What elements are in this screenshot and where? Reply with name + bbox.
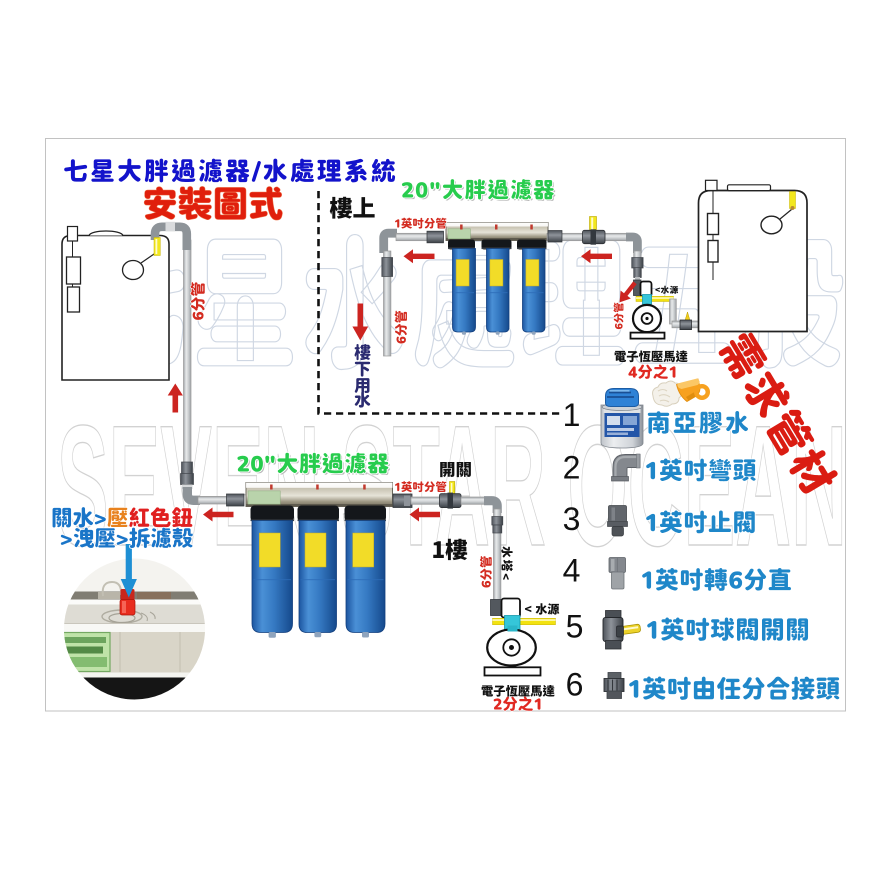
svg-text:5: 5	[566, 609, 584, 645]
svg-text:3: 3	[563, 501, 581, 537]
svg-text:2: 2	[563, 450, 581, 486]
svg-text:6: 6	[566, 667, 584, 703]
svg-text:1: 1	[563, 397, 581, 433]
svg-text:4: 4	[563, 553, 581, 589]
